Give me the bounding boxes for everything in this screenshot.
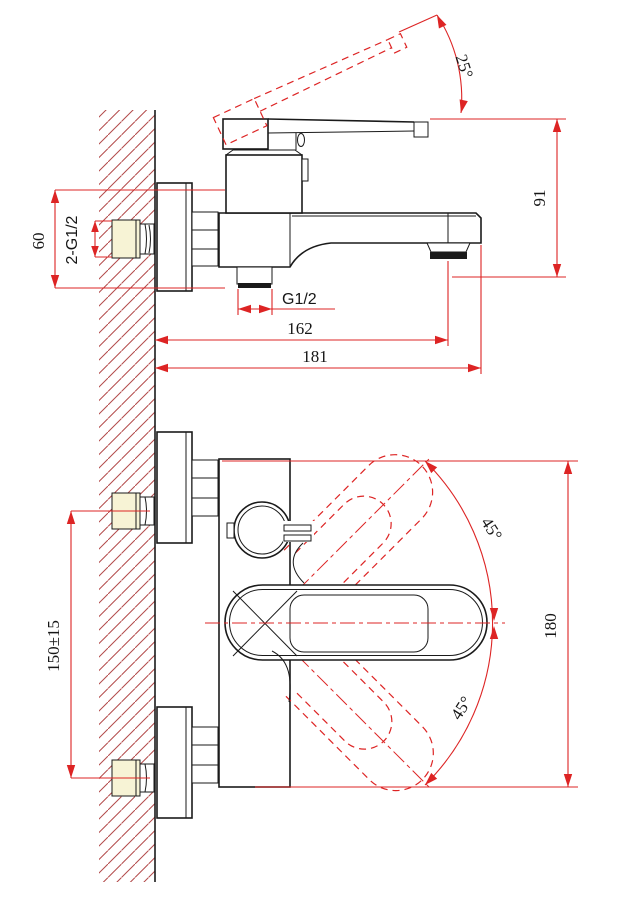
dim-label-150: 150±15 (44, 620, 63, 672)
dim-label-60: 60 (29, 233, 48, 250)
lever-pivot-pin (298, 134, 305, 147)
ring-prong-upper (284, 525, 311, 531)
handle-swing-down-outline (285, 642, 449, 806)
dimension-handle-angle: 25° (399, 13, 566, 119)
plan-escutcheon-bottom (157, 707, 192, 818)
side-escutcheon (157, 183, 192, 291)
dim-label-162: 162 (287, 319, 313, 338)
dim-label-25deg: 25° (452, 52, 477, 81)
lever-grip (223, 119, 268, 149)
ring-prong-lower (284, 535, 311, 541)
outlet-cap (238, 283, 271, 288)
ring-nub (227, 523, 234, 538)
side-clip (302, 159, 308, 181)
aerator (427, 243, 470, 252)
dim-label-91: 91 (530, 190, 549, 207)
faucet-technical-drawing: 25° 91 60 2-G1/2 (0, 0, 621, 899)
dim-label-2-g12: 2-G1/2 (64, 215, 81, 264)
dimension-outlet-thread: G1/2 (238, 289, 335, 315)
dimension-height-91: 91 (452, 119, 566, 277)
outlet-stub (237, 267, 272, 284)
faucet-body-spout (219, 213, 481, 288)
plan-escutcheon-top (157, 432, 192, 543)
handle-lever (223, 119, 428, 150)
dim-label-181: 181 (302, 347, 328, 366)
plan-nut-top (192, 460, 218, 516)
side-connector-nut (192, 212, 218, 266)
dim-label-g12: G1/2 (282, 291, 317, 308)
side-wall-union (112, 220, 154, 258)
plan-nut-bottom (192, 727, 218, 783)
lever-tip (414, 122, 428, 137)
dim-label-180: 180 (541, 613, 560, 639)
technical-drawing-page: 25° 91 60 2-G1/2 (0, 0, 621, 899)
dim-label-45-up: 45° (477, 514, 506, 544)
cartridge-housing (226, 150, 308, 213)
